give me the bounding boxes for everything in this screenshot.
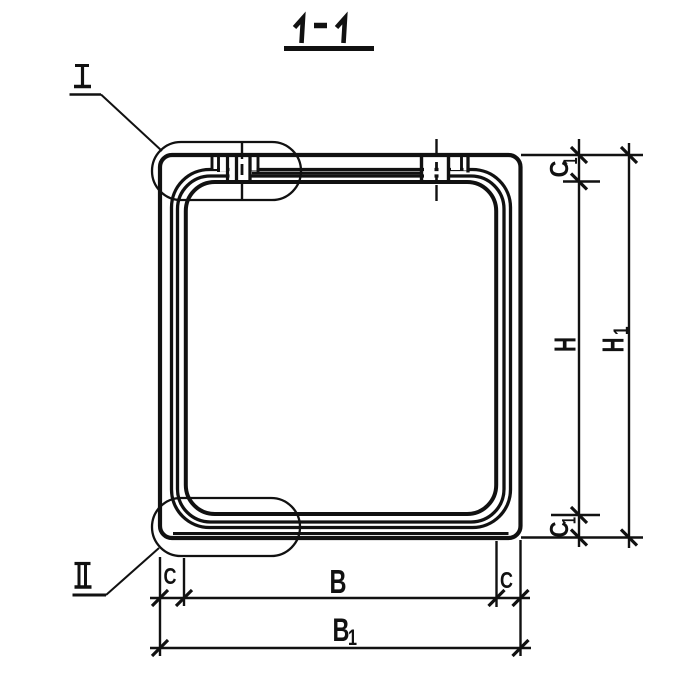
svg-text:C: C xyxy=(164,563,177,589)
svg-text:1: 1 xyxy=(560,517,581,524)
svg-text:C: C xyxy=(500,567,513,593)
svg-text:H: H xyxy=(548,337,583,352)
svg-text:B: B xyxy=(330,563,347,600)
svg-text:B: B xyxy=(333,612,350,648)
svg-text:1: 1 xyxy=(610,326,633,335)
svg-text:1: 1 xyxy=(348,625,357,650)
svg-text:1: 1 xyxy=(561,157,582,164)
svg-text:H: H xyxy=(596,338,631,353)
